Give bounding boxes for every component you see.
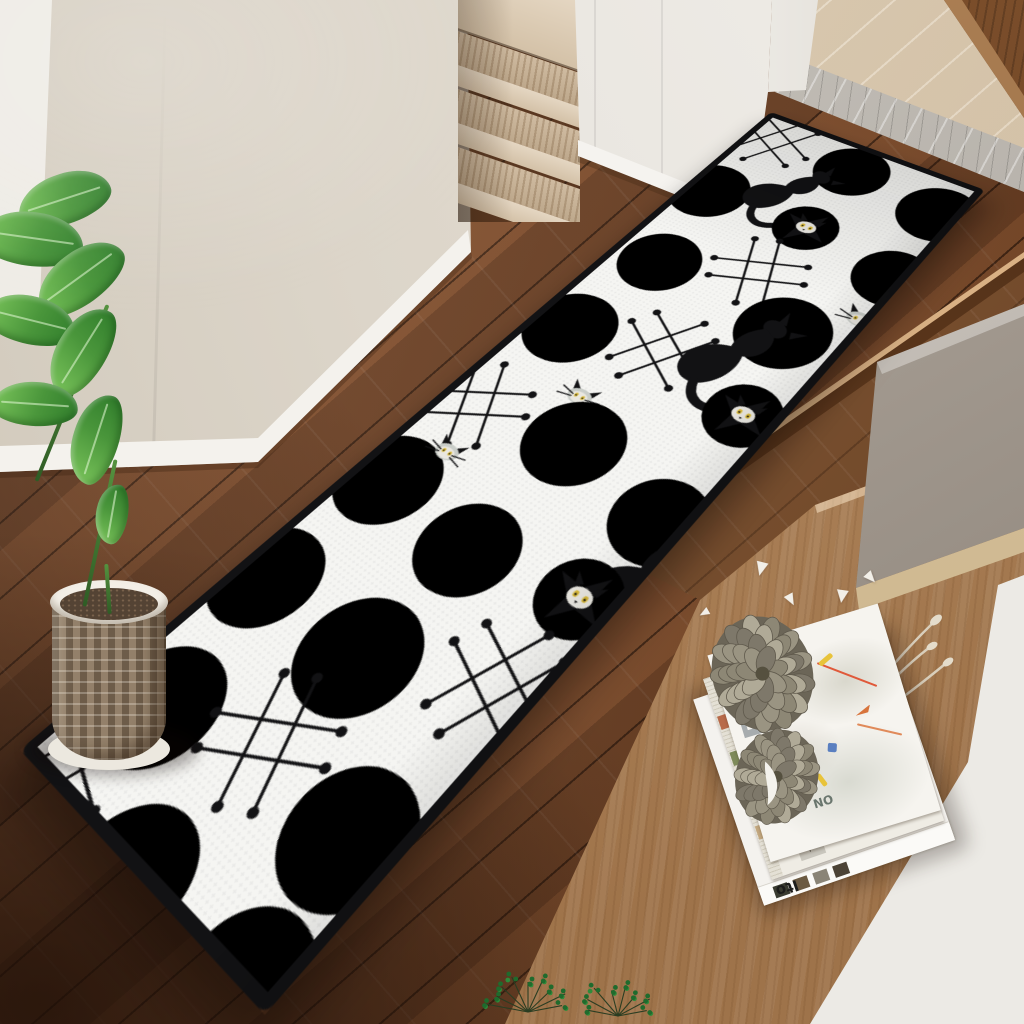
spine-photo bbox=[812, 868, 830, 884]
cabinet-seam bbox=[594, 0, 596, 158]
cabinet-seam bbox=[661, 0, 663, 182]
staircase bbox=[458, 0, 580, 222]
green-sprigs bbox=[466, 950, 696, 1024]
spine-photo bbox=[832, 861, 850, 877]
plant-stem bbox=[104, 564, 111, 614]
hallway-photo: Ito P LIFE ON bbox=[0, 0, 1024, 1024]
stair-shading bbox=[458, 0, 580, 222]
potted-plant bbox=[0, 168, 210, 638]
